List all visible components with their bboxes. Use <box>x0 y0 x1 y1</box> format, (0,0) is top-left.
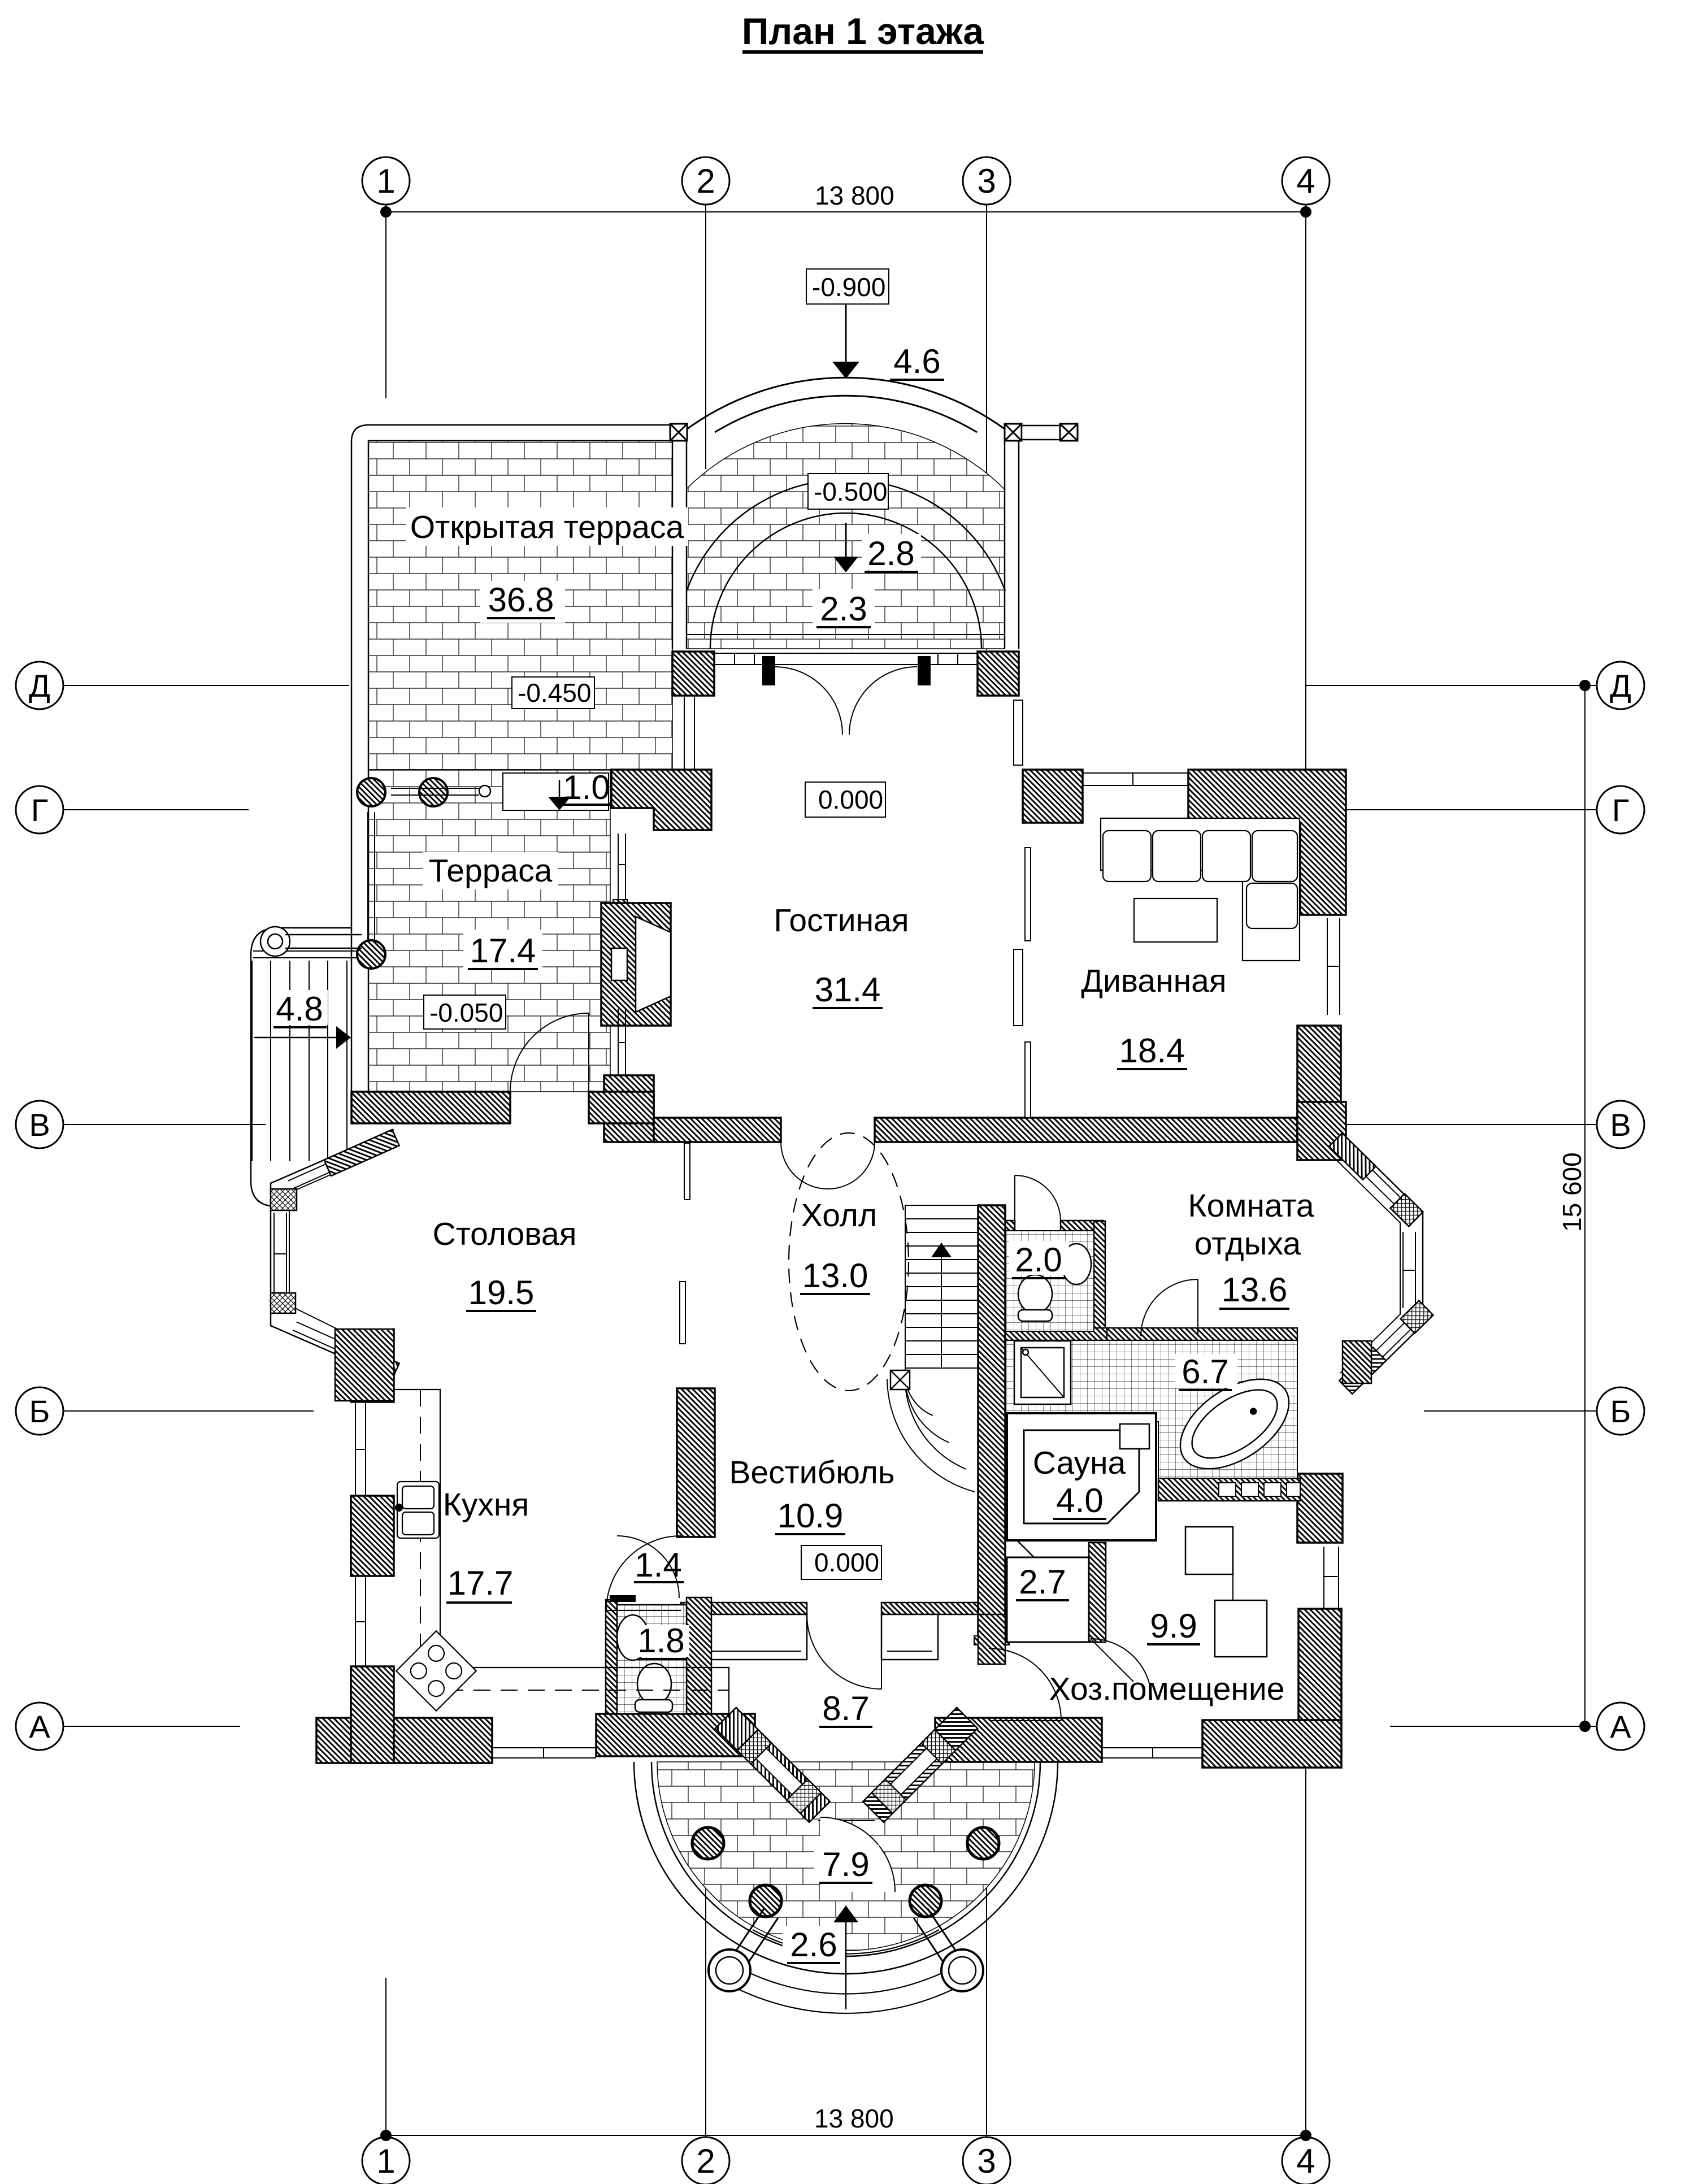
svg-text:4: 4 <box>1296 2142 1315 2180</box>
svg-text:8.7: 8.7 <box>822 1690 869 1727</box>
svg-text:Открытая терраса: Открытая терраса <box>410 509 684 545</box>
svg-text:1.4: 1.4 <box>635 1546 681 1584</box>
svg-text:Сауна: Сауна <box>1033 1445 1126 1481</box>
svg-text:2: 2 <box>696 2142 715 2180</box>
svg-text:Д: Д <box>1610 668 1631 704</box>
svg-text:В: В <box>1610 1107 1631 1143</box>
svg-text:18.4: 18.4 <box>1119 1032 1185 1070</box>
svg-text:Хоз.помещение: Хоз.помещение <box>1049 1671 1285 1707</box>
svg-text:15 600: 15 600 <box>1557 1152 1587 1232</box>
svg-text:Б: Б <box>1610 1393 1631 1429</box>
svg-text:отдыха: отдыха <box>1194 1226 1301 1262</box>
svg-text:Гостиная: Гостиная <box>774 902 909 939</box>
svg-text:2.8: 2.8 <box>867 535 914 572</box>
svg-text:13 800: 13 800 <box>814 2104 894 2133</box>
svg-text:Вестибюль: Вестибюль <box>729 1454 894 1491</box>
svg-text:2.7: 2.7 <box>1019 1563 1066 1601</box>
svg-text:А: А <box>1610 1709 1631 1744</box>
svg-text:17.4: 17.4 <box>470 932 536 970</box>
svg-text:4.8: 4.8 <box>276 990 323 1028</box>
svg-text:Г: Г <box>1612 792 1629 828</box>
svg-text:Кухня: Кухня <box>443 1487 529 1523</box>
svg-text:План 1 этажа: План 1 этажа <box>742 10 985 52</box>
svg-text:3: 3 <box>977 162 996 200</box>
svg-text:2: 2 <box>696 162 715 200</box>
svg-text:1.8: 1.8 <box>637 1622 684 1660</box>
svg-text:-0.900: -0.900 <box>812 272 885 302</box>
svg-text:1.0: 1.0 <box>563 768 610 806</box>
svg-text:-0.450: -0.450 <box>518 678 591 707</box>
svg-text:36.8: 36.8 <box>488 581 554 619</box>
svg-text:4: 4 <box>1296 162 1315 200</box>
svg-text:Комната: Комната <box>1188 1188 1314 1224</box>
svg-text:Г: Г <box>31 792 48 828</box>
svg-text:Д: Д <box>29 668 50 704</box>
svg-text:А: А <box>29 1709 50 1744</box>
svg-text:13.6: 13.6 <box>1222 1271 1288 1309</box>
svg-text:19.5: 19.5 <box>468 1274 535 1312</box>
svg-text:10.9: 10.9 <box>777 1497 844 1535</box>
svg-text:2.0: 2.0 <box>1015 1241 1062 1279</box>
svg-text:Столовая: Столовая <box>433 1216 577 1252</box>
svg-text:-0.500: -0.500 <box>814 477 887 506</box>
svg-text:0.000: 0.000 <box>818 785 883 814</box>
svg-text:1: 1 <box>376 162 395 200</box>
svg-text:-0.050: -0.050 <box>429 998 503 1027</box>
svg-text:Б: Б <box>29 1393 50 1429</box>
svg-text:Холл: Холл <box>801 1197 877 1234</box>
svg-text:2.3: 2.3 <box>820 590 867 628</box>
svg-text:0.000: 0.000 <box>814 1548 879 1577</box>
svg-text:4.0: 4.0 <box>1056 1482 1103 1519</box>
svg-text:В: В <box>29 1107 50 1143</box>
svg-text:4.6: 4.6 <box>893 342 940 380</box>
svg-text:6.7: 6.7 <box>1182 1353 1228 1391</box>
svg-text:Диванная: Диванная <box>1081 963 1226 999</box>
svg-text:7.9: 7.9 <box>822 1846 869 1883</box>
svg-text:13.0: 13.0 <box>802 1257 868 1295</box>
svg-text:Терраса: Терраса <box>429 853 553 889</box>
svg-text:3: 3 <box>977 2142 996 2180</box>
svg-text:13 800: 13 800 <box>815 181 894 210</box>
svg-text:2.6: 2.6 <box>790 1926 837 1964</box>
svg-text:9.9: 9.9 <box>1150 1607 1197 1645</box>
svg-text:31.4: 31.4 <box>815 971 881 1009</box>
svg-text:1: 1 <box>376 2142 395 2180</box>
svg-text:17.7: 17.7 <box>448 1564 514 1602</box>
